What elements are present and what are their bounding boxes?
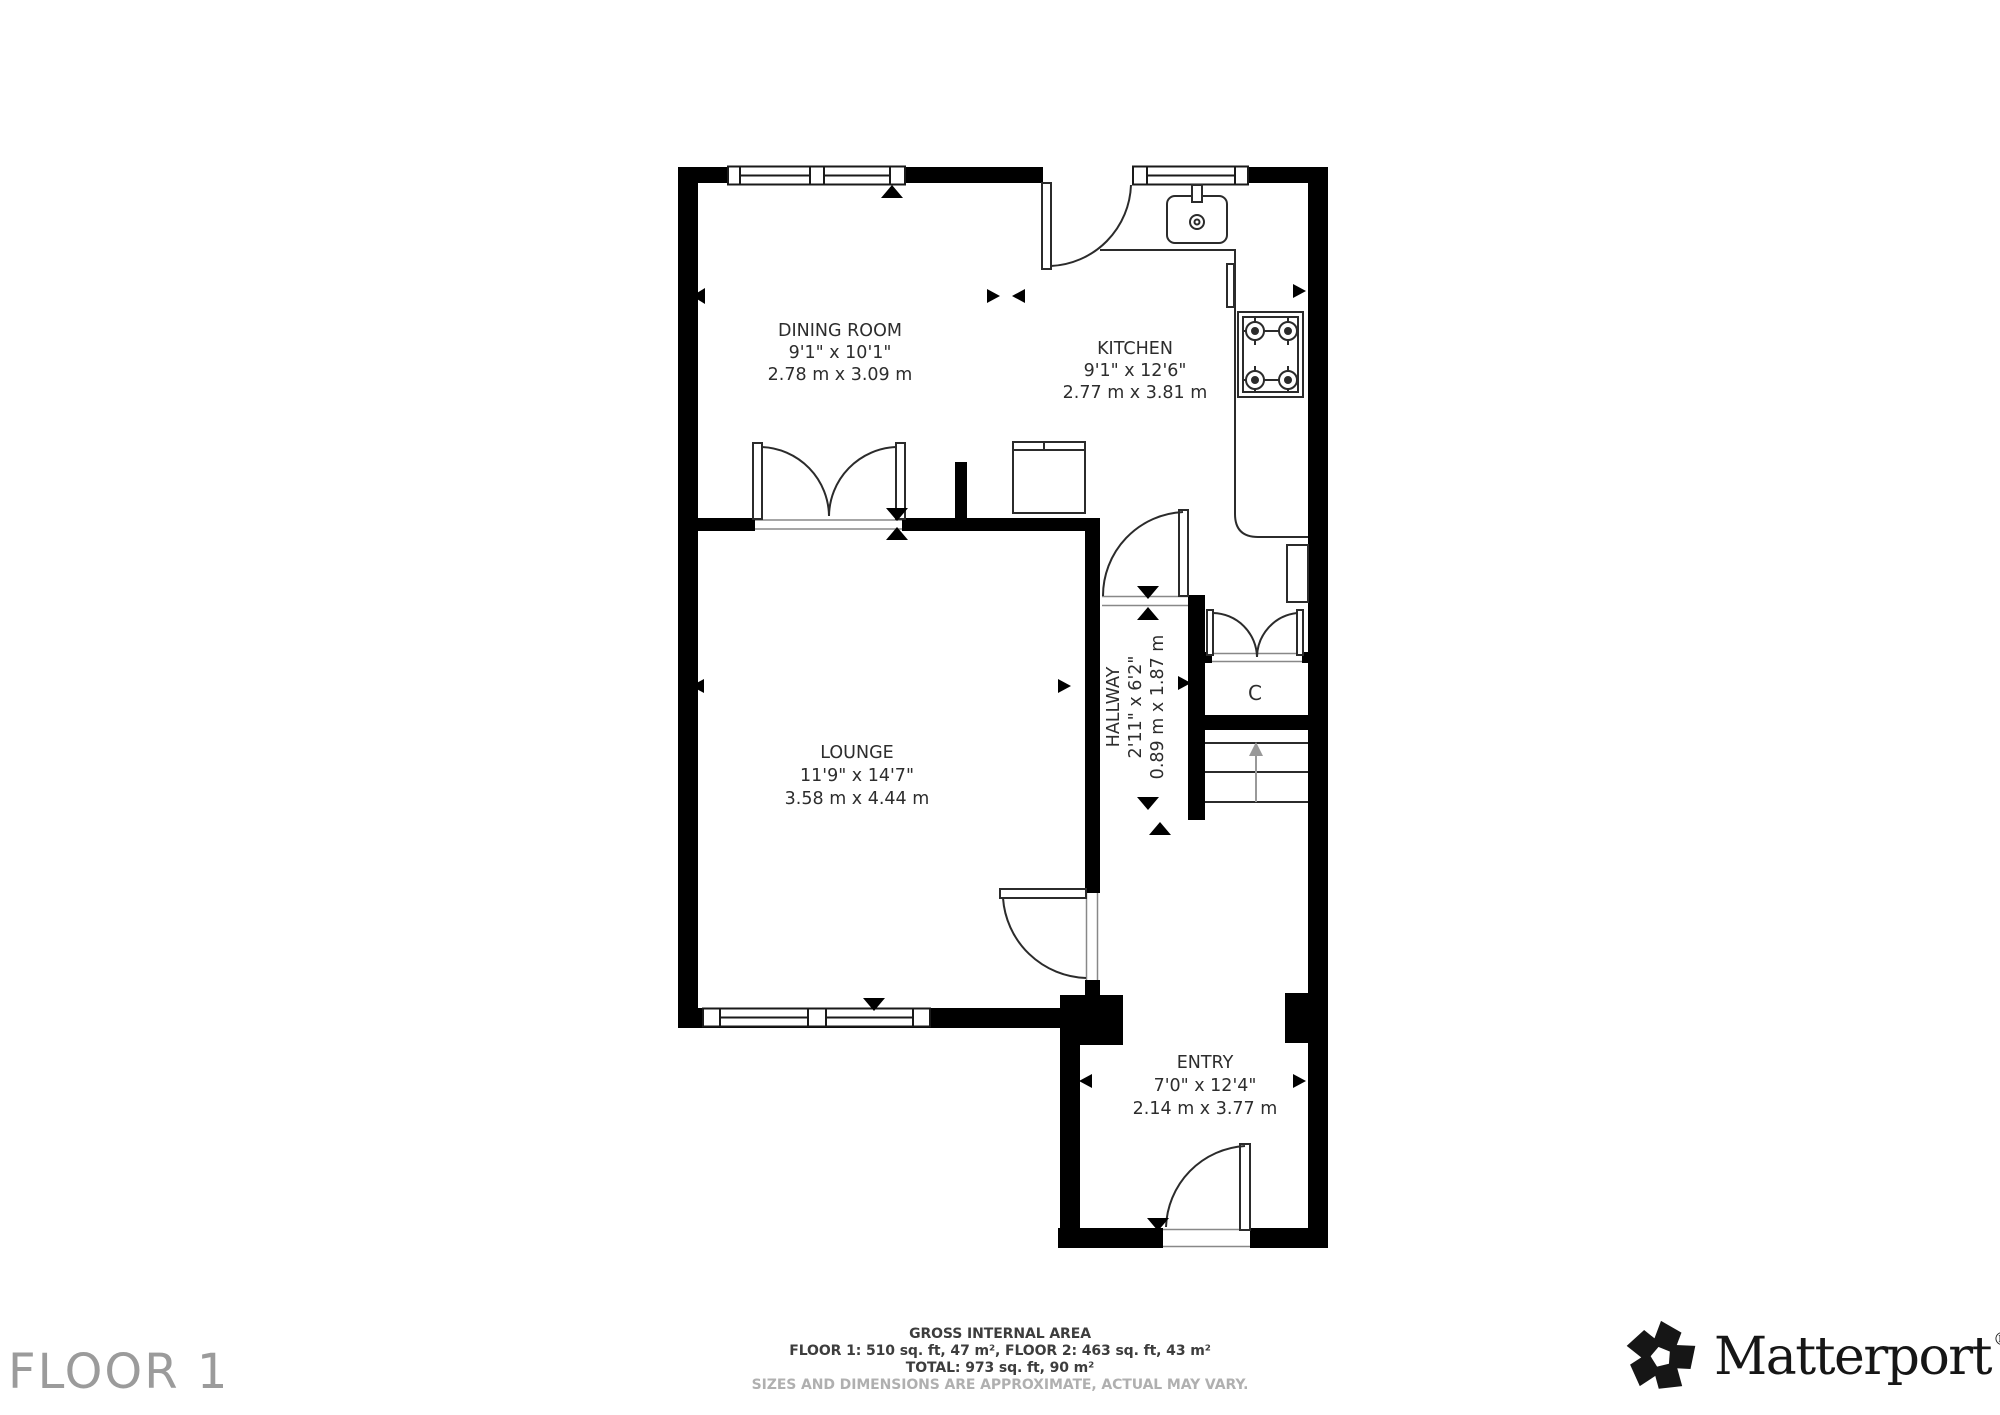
room-label-kitchen: KITCHEN 9'1" x 12'6" 2.77 m x 3.81 m <box>1063 339 1208 403</box>
window-kitchen-top <box>1133 167 1248 185</box>
room-label-hallway: HALLWAY 2'11" x 6'2" 0.89 m x 1.87 m <box>1104 635 1168 780</box>
stove <box>1238 312 1303 397</box>
double-door-dining-lounge <box>753 443 905 529</box>
window-lounge-bottom <box>703 1009 930 1027</box>
brand-wordmark: Matterport <box>1714 1327 1991 1387</box>
wall-fixture <box>1287 545 1308 602</box>
svg-text:ENTRY: ENTRY <box>1177 1053 1234 1073</box>
matterport-logo: Matterport ® <box>1622 1318 2000 1396</box>
svg-text:KITCHEN: KITCHEN <box>1097 339 1173 359</box>
matterport-pinwheel-icon <box>1622 1318 1700 1396</box>
svg-text:HALLWAY: HALLWAY <box>1104 666 1124 747</box>
window-dining-top <box>728 167 905 185</box>
svg-text:DINING ROOM: DINING ROOM <box>778 321 902 341</box>
footer-disclaimer: SIZES AND DIMENSIONS ARE APPROXIMATE, AC… <box>600 1377 1400 1394</box>
svg-text:3.58 m x 4.44 m: 3.58 m x 4.44 m <box>785 789 930 809</box>
svg-text:LOUNGE: LOUNGE <box>820 743 893 763</box>
refrigerator <box>1013 442 1085 513</box>
footer-total-area: TOTAL: 973 sq. ft, 90 m² <box>600 1360 1400 1377</box>
kitchen-sink <box>1167 185 1227 243</box>
svg-text:2'11" x 6'2": 2'11" x 6'2" <box>1126 656 1146 759</box>
room-label-dining: DINING ROOM 9'1" x 10'1" 2.78 m x 3.09 m <box>768 321 913 385</box>
svg-text:9'1" x 12'6": 9'1" x 12'6" <box>1084 361 1187 381</box>
svg-text:0.89 m x 1.87 m: 0.89 m x 1.87 m <box>1148 635 1168 780</box>
closet-label: C <box>1248 681 1262 705</box>
room-label-entry: ENTRY 7'0" x 12'4" 2.14 m x 3.77 m <box>1133 1053 1278 1119</box>
svg-text:11'9" x 14'7": 11'9" x 14'7" <box>800 766 914 786</box>
dimension-arrows <box>691 185 1306 1231</box>
room-label-lounge: LOUNGE 11'9" x 14'7" 3.58 m x 4.44 m <box>785 743 930 809</box>
svg-text:2.78 m x 3.09 m: 2.78 m x 3.09 m <box>768 365 913 385</box>
door-kitchen-top <box>1042 183 1131 269</box>
footer-floor-areas: FLOOR 1: 510 sq. ft, 47 m², FLOOR 2: 463… <box>600 1343 1400 1360</box>
svg-text:9'1" x 10'1": 9'1" x 10'1" <box>789 343 892 363</box>
closet-double-door <box>1207 610 1303 662</box>
footer-title: GROSS INTERNAL AREA <box>600 1326 1400 1343</box>
floor-number-label: FLOOR 1 <box>8 1344 229 1400</box>
svg-text:2.77 m x 3.81 m: 2.77 m x 3.81 m <box>1063 383 1208 403</box>
registered-trademark-symbol: ® <box>1993 1329 2000 1350</box>
gross-internal-area-block: GROSS INTERNAL AREA FLOOR 1: 510 sq. ft,… <box>600 1326 1400 1394</box>
floor-plan-canvas: DINING ROOM 9'1" x 10'1" 2.78 m x 3.09 m… <box>0 0 2000 1415</box>
svg-text:7'0" x 12'4": 7'0" x 12'4" <box>1154 1076 1257 1096</box>
svg-text:2.14 m x 3.77 m: 2.14 m x 3.77 m <box>1133 1099 1278 1119</box>
door-lounge-entry <box>1000 889 1098 980</box>
